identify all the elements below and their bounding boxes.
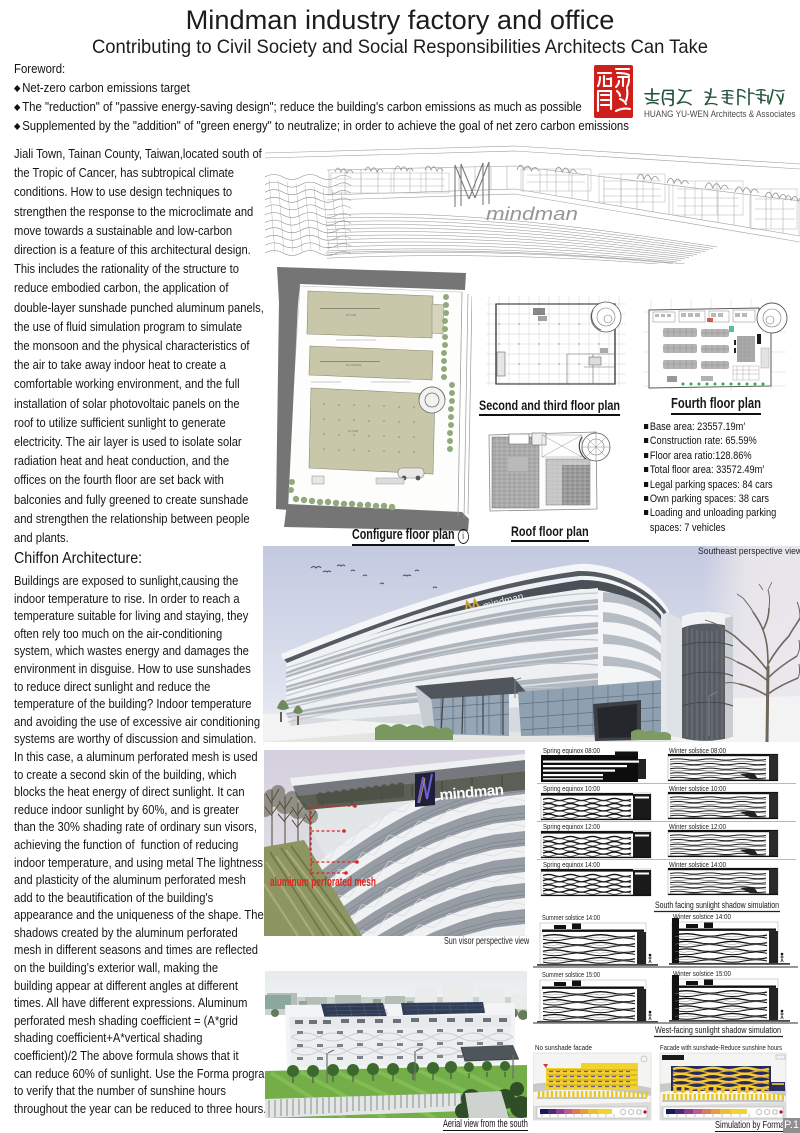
- svg-text:Winter solstice 15:00: Winter solstice 15:00: [673, 969, 731, 978]
- svg-text:Summer solstice 15:00: Summer solstice 15:00: [542, 970, 600, 979]
- svg-text:Spring equinox 14:00: Spring equinox 14:00: [543, 860, 600, 869]
- svg-text:South facing sunlight shadow s: South facing sunlight shadow simulation: [655, 900, 779, 911]
- svg-text:Spring equinox 10:00: Spring equinox 10:00: [543, 784, 600, 793]
- svg-text:Spring equinox 08:00: Spring equinox 08:00: [543, 746, 600, 755]
- svg-text:Facade with sunshade-Reduce su: Facade with sunshade-Reduce sunshine hou…: [660, 1043, 782, 1052]
- svg-text:Summer solstice 14:00: Summer solstice 14:00: [542, 913, 600, 922]
- svg-text:Winter solstice 10:00: Winter solstice 10:00: [669, 784, 726, 793]
- svg-text:1F OFFICE: 1F OFFICE: [346, 363, 361, 367]
- svg-text:West-facing sunlight shadow si: West-facing sunlight shadow simulation: [655, 1025, 781, 1036]
- svg-text:No sunshade facade: No sunshade facade: [535, 1043, 592, 1052]
- svg-text:mindman: mindman: [486, 204, 578, 224]
- svg-text:Winter solstice 12:00: Winter solstice 12:00: [669, 822, 726, 831]
- svg-text:Winter solstice 14:00: Winter solstice 14:00: [669, 860, 726, 869]
- svg-text:Spring equinox 12:00: Spring equinox 12:00: [543, 822, 600, 831]
- svg-text:Winter solstice 08:00: Winter solstice 08:00: [669, 746, 726, 755]
- svg-text:Winter solstice 14:00: Winter solstice 14:00: [673, 912, 731, 921]
- svg-text:1F FAB: 1F FAB: [348, 429, 358, 433]
- svg-text:1F FAB: 1F FAB: [346, 313, 356, 317]
